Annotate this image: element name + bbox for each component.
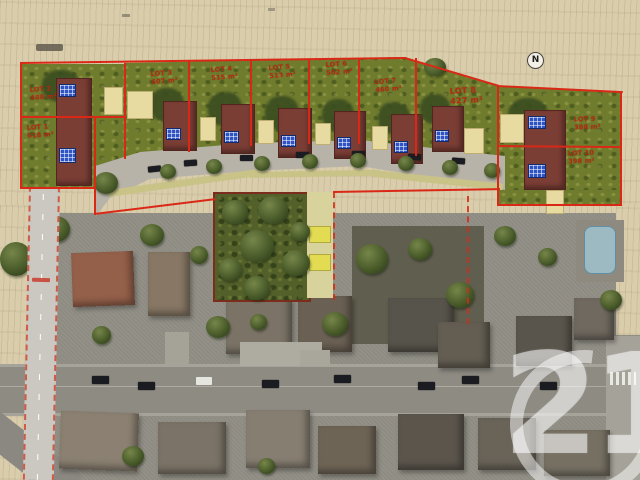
new-house <box>278 108 312 158</box>
tree <box>250 314 267 330</box>
lot-divider <box>188 60 190 152</box>
driveway-new <box>315 123 331 145</box>
lot-divider <box>415 58 417 156</box>
tree <box>350 153 366 168</box>
dashed-boundary <box>333 192 335 300</box>
lot-area: 427 m² <box>450 95 483 106</box>
lot-label-5: LOT 5 513 m² <box>268 63 296 81</box>
garden-shed <box>309 254 331 271</box>
house-roof <box>246 410 310 468</box>
driveway-new <box>104 87 123 115</box>
lot-label-10: LOT 10 398 m² <box>568 150 595 167</box>
house-roof <box>148 252 190 316</box>
solar-panel <box>59 148 76 163</box>
swimming-pool <box>584 226 616 274</box>
plan-boundary <box>498 204 622 206</box>
lot-divider <box>308 59 310 144</box>
car <box>462 376 479 384</box>
plan-boundary <box>20 187 96 189</box>
tree <box>218 258 242 281</box>
solar-panel <box>528 116 546 129</box>
lot-label-6: LOT 6 502 m² <box>325 60 353 78</box>
car <box>138 382 155 390</box>
lot-divider <box>20 116 126 118</box>
house-roof <box>438 322 490 368</box>
new-house <box>432 106 464 152</box>
car <box>418 382 435 390</box>
tree <box>538 248 557 266</box>
plan-boundary <box>20 63 22 189</box>
lot-label-4: LOT 4 515 m² <box>210 65 238 83</box>
tree <box>356 244 388 274</box>
driveway <box>300 350 330 366</box>
solar-panel <box>528 164 546 178</box>
car <box>92 376 109 384</box>
plan-boundary <box>94 188 96 215</box>
solar-panel <box>281 135 296 147</box>
tree <box>240 230 274 262</box>
solar-panel <box>394 141 408 153</box>
lot-label-1: LOT 1 618 m² <box>26 123 54 140</box>
watermark-logo: 21 <box>502 336 640 476</box>
car <box>240 155 253 161</box>
tree <box>322 312 348 336</box>
driveway-new <box>200 117 216 141</box>
driveway-new <box>500 114 524 143</box>
driveway-new <box>546 190 564 214</box>
tree <box>122 446 144 466</box>
car <box>334 375 351 383</box>
lot-label-9: LOT 9 388 m² <box>574 116 601 133</box>
path-strip <box>307 192 333 298</box>
tree <box>206 159 222 174</box>
tree <box>282 250 310 276</box>
lot-label-2: LOT 2 488 m² <box>29 85 57 102</box>
field-mark <box>36 44 63 51</box>
lot-area: 388 m² <box>574 123 601 132</box>
aerial-site-plan: LOT 2 488 m² LOT 1 618 m² LOT 3 607 m² L… <box>0 0 640 480</box>
car <box>262 380 279 388</box>
solar-panel <box>337 137 351 149</box>
north-compass-icon: N <box>527 52 544 69</box>
house-roof <box>158 422 226 474</box>
new-house <box>163 101 197 151</box>
access-road <box>23 186 60 480</box>
field-speck <box>122 14 130 17</box>
house-roof <box>71 251 135 307</box>
tree <box>494 226 516 246</box>
tree <box>258 196 288 224</box>
garden-shed <box>309 226 331 243</box>
tree <box>190 246 208 264</box>
tree <box>398 156 414 171</box>
tree <box>94 172 118 194</box>
field-speck <box>268 8 275 11</box>
driveway-new <box>127 91 153 119</box>
lot-divider <box>250 60 252 146</box>
road-dashes <box>37 186 44 480</box>
car <box>196 377 212 385</box>
tree <box>408 238 432 260</box>
driveway-new <box>258 120 274 144</box>
tree <box>222 200 248 224</box>
tree <box>244 276 270 300</box>
tree <box>446 282 474 308</box>
road-label-mark <box>32 278 50 282</box>
house-roof <box>398 414 464 470</box>
tree <box>290 222 310 241</box>
plan-boundary <box>620 92 622 206</box>
tree <box>442 160 458 175</box>
driveway-new <box>464 128 484 154</box>
tree <box>302 154 318 169</box>
solar-panel <box>224 131 239 143</box>
tree <box>258 458 275 474</box>
dashed-boundary <box>467 196 469 324</box>
lot-label-7: LOT 7 460 m² <box>374 77 402 95</box>
solar-panel <box>59 84 76 97</box>
tree <box>92 326 111 344</box>
lot-divider <box>124 63 126 159</box>
tree <box>206 316 230 338</box>
lot-label-8: LOT 8 427 m² <box>450 85 483 106</box>
lot-divider <box>94 116 96 189</box>
solar-panel <box>435 130 449 142</box>
car <box>184 160 197 167</box>
tree <box>160 164 176 179</box>
tree <box>140 224 164 246</box>
lot-label-3: LOT 3 607 m² <box>150 69 178 87</box>
lot-area: 398 m² <box>568 157 595 166</box>
house-roof <box>318 426 376 474</box>
tree <box>254 156 270 171</box>
solar-panel <box>166 128 181 140</box>
driveway <box>165 332 189 364</box>
lot-divider <box>358 58 360 144</box>
tree <box>600 290 622 310</box>
driveway-new <box>372 126 388 150</box>
